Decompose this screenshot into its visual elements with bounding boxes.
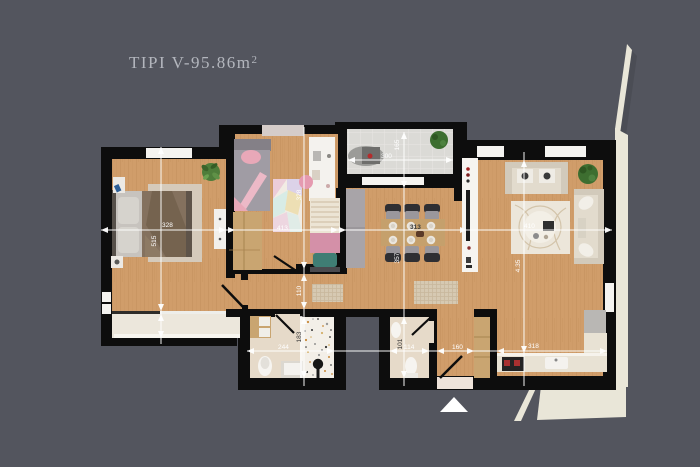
svg-text:114: 114 — [404, 344, 415, 351]
svg-text:515: 515 — [151, 235, 158, 246]
svg-text:413: 413 — [277, 225, 288, 232]
svg-text:300: 300 — [381, 153, 392, 160]
svg-text:357: 357 — [394, 252, 401, 263]
svg-text:101: 101 — [397, 338, 404, 349]
svg-text:TIPI V-95.86m2: TIPI V-95.86m2 — [129, 53, 258, 72]
svg-text:318: 318 — [528, 343, 539, 350]
svg-text:183: 183 — [296, 331, 303, 342]
svg-text:165: 165 — [394, 139, 401, 150]
svg-text:313: 313 — [410, 224, 421, 231]
svg-text:244: 244 — [278, 344, 289, 351]
svg-text:110: 110 — [296, 285, 303, 296]
svg-text:328: 328 — [162, 222, 173, 229]
svg-text:328: 328 — [296, 189, 303, 200]
svg-text:410: 410 — [524, 223, 535, 230]
svg-text:4.35: 4.35 — [515, 259, 522, 272]
svg-text:160: 160 — [452, 344, 463, 351]
